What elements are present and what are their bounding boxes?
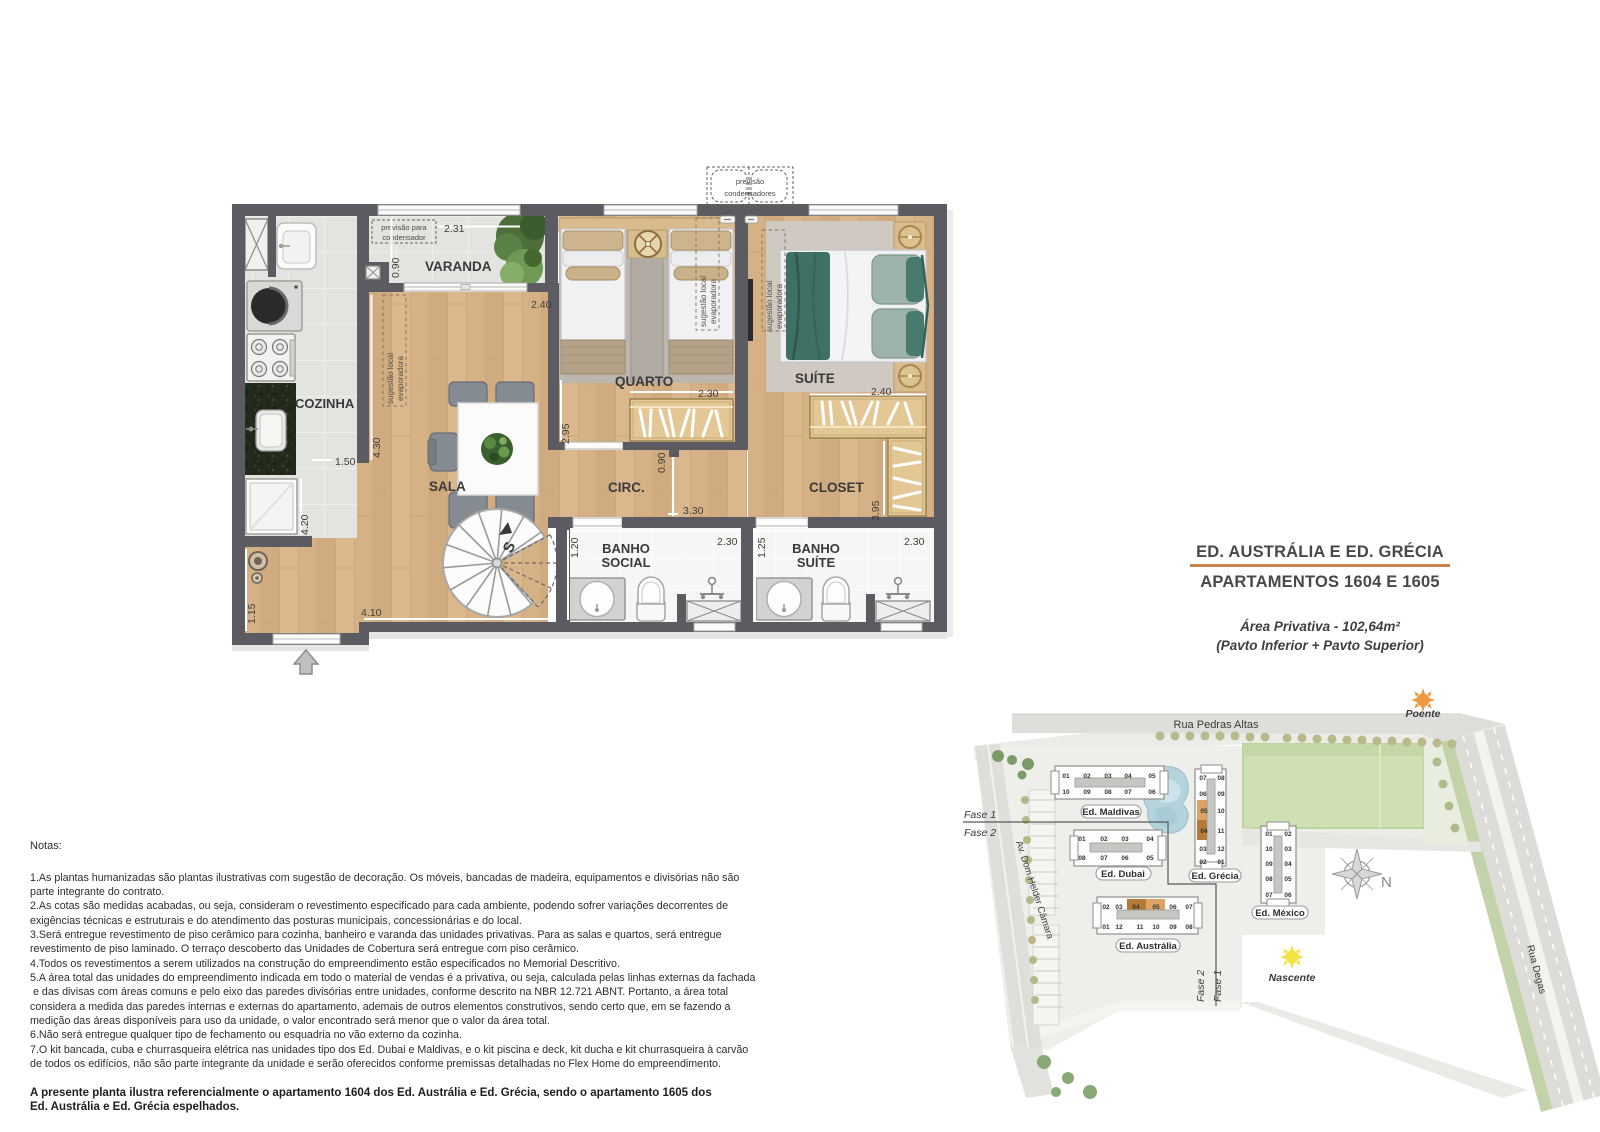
- svg-text:Ed. Austrália: Ed. Austrália: [1119, 941, 1177, 952]
- svg-text:N: N: [1381, 874, 1392, 891]
- svg-text:03: 03: [1199, 846, 1207, 853]
- svg-text:01: 01: [1062, 773, 1070, 780]
- svg-text:09: 09: [1169, 924, 1177, 931]
- svg-text:05: 05: [1148, 773, 1156, 780]
- svg-text:01: 01: [1265, 831, 1273, 838]
- svg-text:10: 10: [1152, 924, 1160, 931]
- svg-text:08: 08: [1078, 855, 1086, 862]
- svg-text:02: 02: [1100, 836, 1108, 843]
- svg-text:04: 04: [1284, 861, 1292, 868]
- svg-text:05: 05: [1200, 808, 1208, 815]
- svg-text:Fase 1: Fase 1: [964, 809, 996, 821]
- svg-text:07: 07: [1265, 892, 1273, 899]
- svg-text:03: 03: [1284, 846, 1292, 853]
- svg-text:02: 02: [1284, 831, 1292, 838]
- svg-text:10: 10: [1217, 808, 1225, 815]
- svg-text:07: 07: [1185, 904, 1193, 911]
- svg-text:10: 10: [1062, 789, 1070, 796]
- svg-text:11: 11: [1137, 924, 1144, 931]
- svg-text:Fase 2: Fase 2: [1195, 970, 1207, 1002]
- svg-text:Nascente: Nascente: [1269, 972, 1316, 984]
- svg-text:Ed. Dubai: Ed. Dubai: [1101, 869, 1145, 880]
- svg-text:08: 08: [1217, 775, 1225, 782]
- svg-text:Ed. México: Ed. México: [1255, 908, 1305, 919]
- svg-text:Ed. Grécia: Ed. Grécia: [1192, 871, 1240, 882]
- svg-text:Fase 1: Fase 1: [1212, 970, 1224, 1002]
- svg-text:08: 08: [1265, 876, 1273, 883]
- svg-text:04: 04: [1200, 828, 1208, 835]
- svg-text:11: 11: [1218, 828, 1225, 835]
- svg-text:Rua Pedras Altas: Rua Pedras Altas: [1174, 719, 1259, 731]
- svg-text:09: 09: [1217, 791, 1225, 798]
- svg-text:Poente: Poente: [1405, 708, 1440, 720]
- svg-text:01: 01: [1078, 836, 1086, 843]
- svg-text:03: 03: [1121, 836, 1129, 843]
- svg-text:06: 06: [1284, 892, 1292, 899]
- svg-text:06: 06: [1169, 904, 1177, 911]
- svg-text:03: 03: [1115, 904, 1123, 911]
- svg-text:Fase 2: Fase 2: [964, 827, 996, 839]
- svg-text:04: 04: [1132, 904, 1140, 911]
- svg-text:04: 04: [1124, 773, 1132, 780]
- svg-text:08: 08: [1185, 924, 1193, 931]
- svg-text:Ed. Maldivas: Ed. Maldivas: [1082, 807, 1140, 818]
- svg-text:05: 05: [1152, 904, 1160, 911]
- svg-text:01: 01: [1217, 859, 1225, 866]
- svg-text:06: 06: [1199, 791, 1207, 798]
- svg-text:03: 03: [1104, 773, 1112, 780]
- svg-text:06: 06: [1121, 855, 1129, 862]
- svg-text:08: 08: [1104, 789, 1112, 796]
- svg-text:05: 05: [1146, 855, 1154, 862]
- svg-text:02: 02: [1102, 904, 1110, 911]
- svg-text:02: 02: [1199, 859, 1207, 866]
- svg-text:07: 07: [1199, 775, 1207, 782]
- svg-text:12: 12: [1217, 846, 1225, 853]
- svg-text:12: 12: [1115, 924, 1123, 931]
- svg-text:07: 07: [1124, 789, 1132, 796]
- svg-text:05: 05: [1284, 876, 1292, 883]
- svg-text:09: 09: [1265, 861, 1273, 868]
- svg-text:06: 06: [1148, 789, 1156, 796]
- svg-text:10: 10: [1265, 846, 1273, 853]
- svg-text:09: 09: [1083, 789, 1091, 796]
- svg-text:07: 07: [1100, 855, 1108, 862]
- svg-text:02: 02: [1083, 773, 1091, 780]
- svg-text:04: 04: [1146, 836, 1154, 843]
- svg-text:01: 01: [1102, 924, 1110, 931]
